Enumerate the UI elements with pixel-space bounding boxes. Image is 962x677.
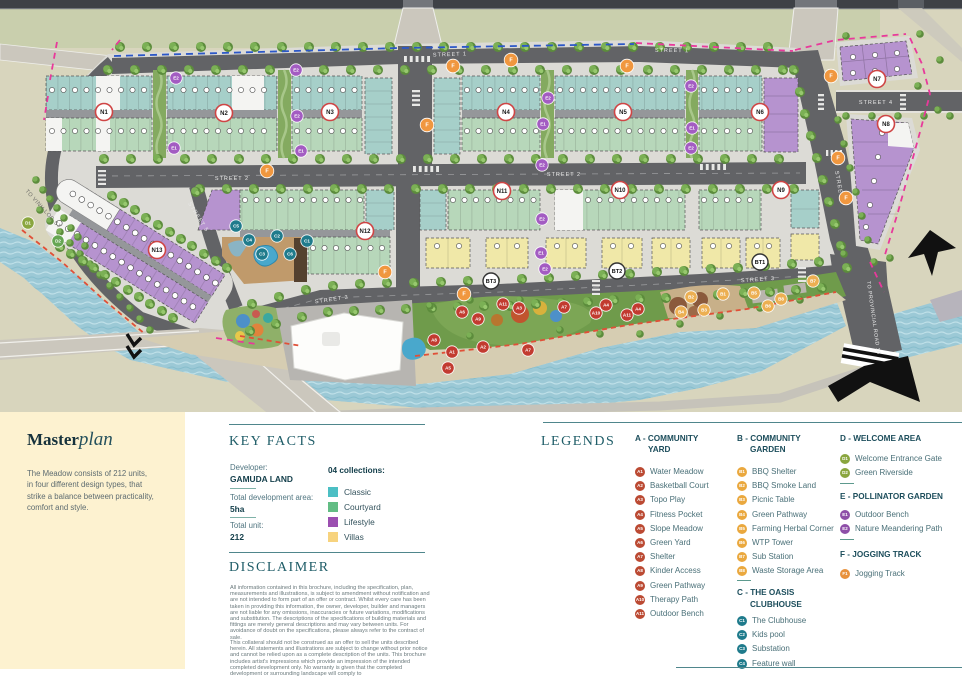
svg-text:STREET 1: STREET 1: [433, 51, 467, 58]
svg-text:A11: A11: [623, 313, 632, 318]
svg-text:N5: N5: [619, 110, 627, 116]
svg-text:B7: B7: [810, 279, 816, 284]
svg-text:A10: A10: [592, 311, 601, 316]
svg-text:D1: D1: [25, 221, 31, 226]
svg-text:B5: B5: [751, 291, 757, 296]
svg-text:E2: E2: [173, 76, 179, 81]
svg-text:A7: A7: [525, 348, 531, 353]
svg-text:E2: E2: [294, 114, 300, 119]
svg-text:E1: E1: [298, 149, 304, 154]
svg-text:A11: A11: [499, 302, 508, 307]
svg-text:A7: A7: [561, 305, 567, 310]
svg-text:N4: N4: [502, 110, 510, 116]
svg-text:BT1: BT1: [755, 260, 765, 266]
svg-text:C6: C6: [287, 252, 293, 257]
svg-text:STREET 2: STREET 2: [547, 172, 581, 178]
svg-text:N7: N7: [873, 77, 881, 83]
svg-text:N11: N11: [497, 189, 508, 195]
svg-text:E2: E2: [539, 217, 545, 222]
svg-text:E2: E2: [293, 68, 299, 73]
svg-text:E2: E2: [688, 84, 694, 89]
svg-text:C3: C3: [259, 252, 265, 257]
svg-text:A4: A4: [635, 307, 641, 312]
svg-text:A9: A9: [475, 317, 481, 322]
svg-text:C4: C4: [246, 238, 252, 243]
svg-text:C5: C5: [233, 224, 239, 229]
svg-text:N12: N12: [359, 229, 371, 235]
svg-text:STREET 4: STREET 4: [859, 100, 893, 106]
svg-text:A1: A1: [449, 350, 455, 355]
svg-text:STREET 2: STREET 2: [215, 176, 249, 182]
svg-text:E1: E1: [689, 126, 695, 131]
svg-text:N13: N13: [151, 248, 163, 254]
svg-text:B3: B3: [701, 308, 707, 313]
svg-text:BT2: BT2: [612, 269, 622, 275]
svg-text:B4: B4: [678, 310, 684, 315]
svg-text:E2: E2: [542, 267, 548, 272]
svg-text:B6: B6: [765, 304, 771, 309]
svg-text:A3: A3: [516, 306, 522, 311]
svg-text:N2: N2: [220, 111, 228, 117]
svg-text:E1: E1: [171, 146, 177, 151]
svg-text:E1: E1: [540, 122, 546, 127]
svg-text:N1: N1: [100, 110, 108, 116]
svg-text:A5: A5: [445, 366, 451, 371]
svg-text:A6: A6: [459, 310, 465, 315]
svg-text:BT3: BT3: [486, 279, 496, 285]
svg-text:D2: D2: [55, 239, 61, 244]
svg-text:B2: B2: [688, 295, 694, 300]
svg-text:STREET 1: STREET 1: [655, 48, 689, 55]
svg-text:A8: A8: [431, 338, 437, 343]
svg-text:E2: E2: [539, 163, 545, 168]
svg-text:A4: A4: [603, 303, 609, 308]
svg-text:B8: B8: [778, 297, 784, 302]
svg-text:E1: E1: [538, 251, 544, 256]
svg-text:N10: N10: [614, 188, 626, 194]
svg-text:N3: N3: [326, 110, 334, 116]
svg-text:E2: E2: [688, 146, 694, 151]
svg-text:N6: N6: [756, 110, 764, 116]
svg-text:E2: E2: [545, 96, 551, 101]
svg-text:N8: N8: [882, 122, 890, 128]
svg-text:A2: A2: [480, 345, 486, 350]
svg-text:N9: N9: [777, 188, 785, 194]
svg-text:C1: C1: [304, 239, 310, 244]
svg-text:C2: C2: [274, 234, 280, 239]
svg-text:B1: B1: [720, 292, 726, 297]
